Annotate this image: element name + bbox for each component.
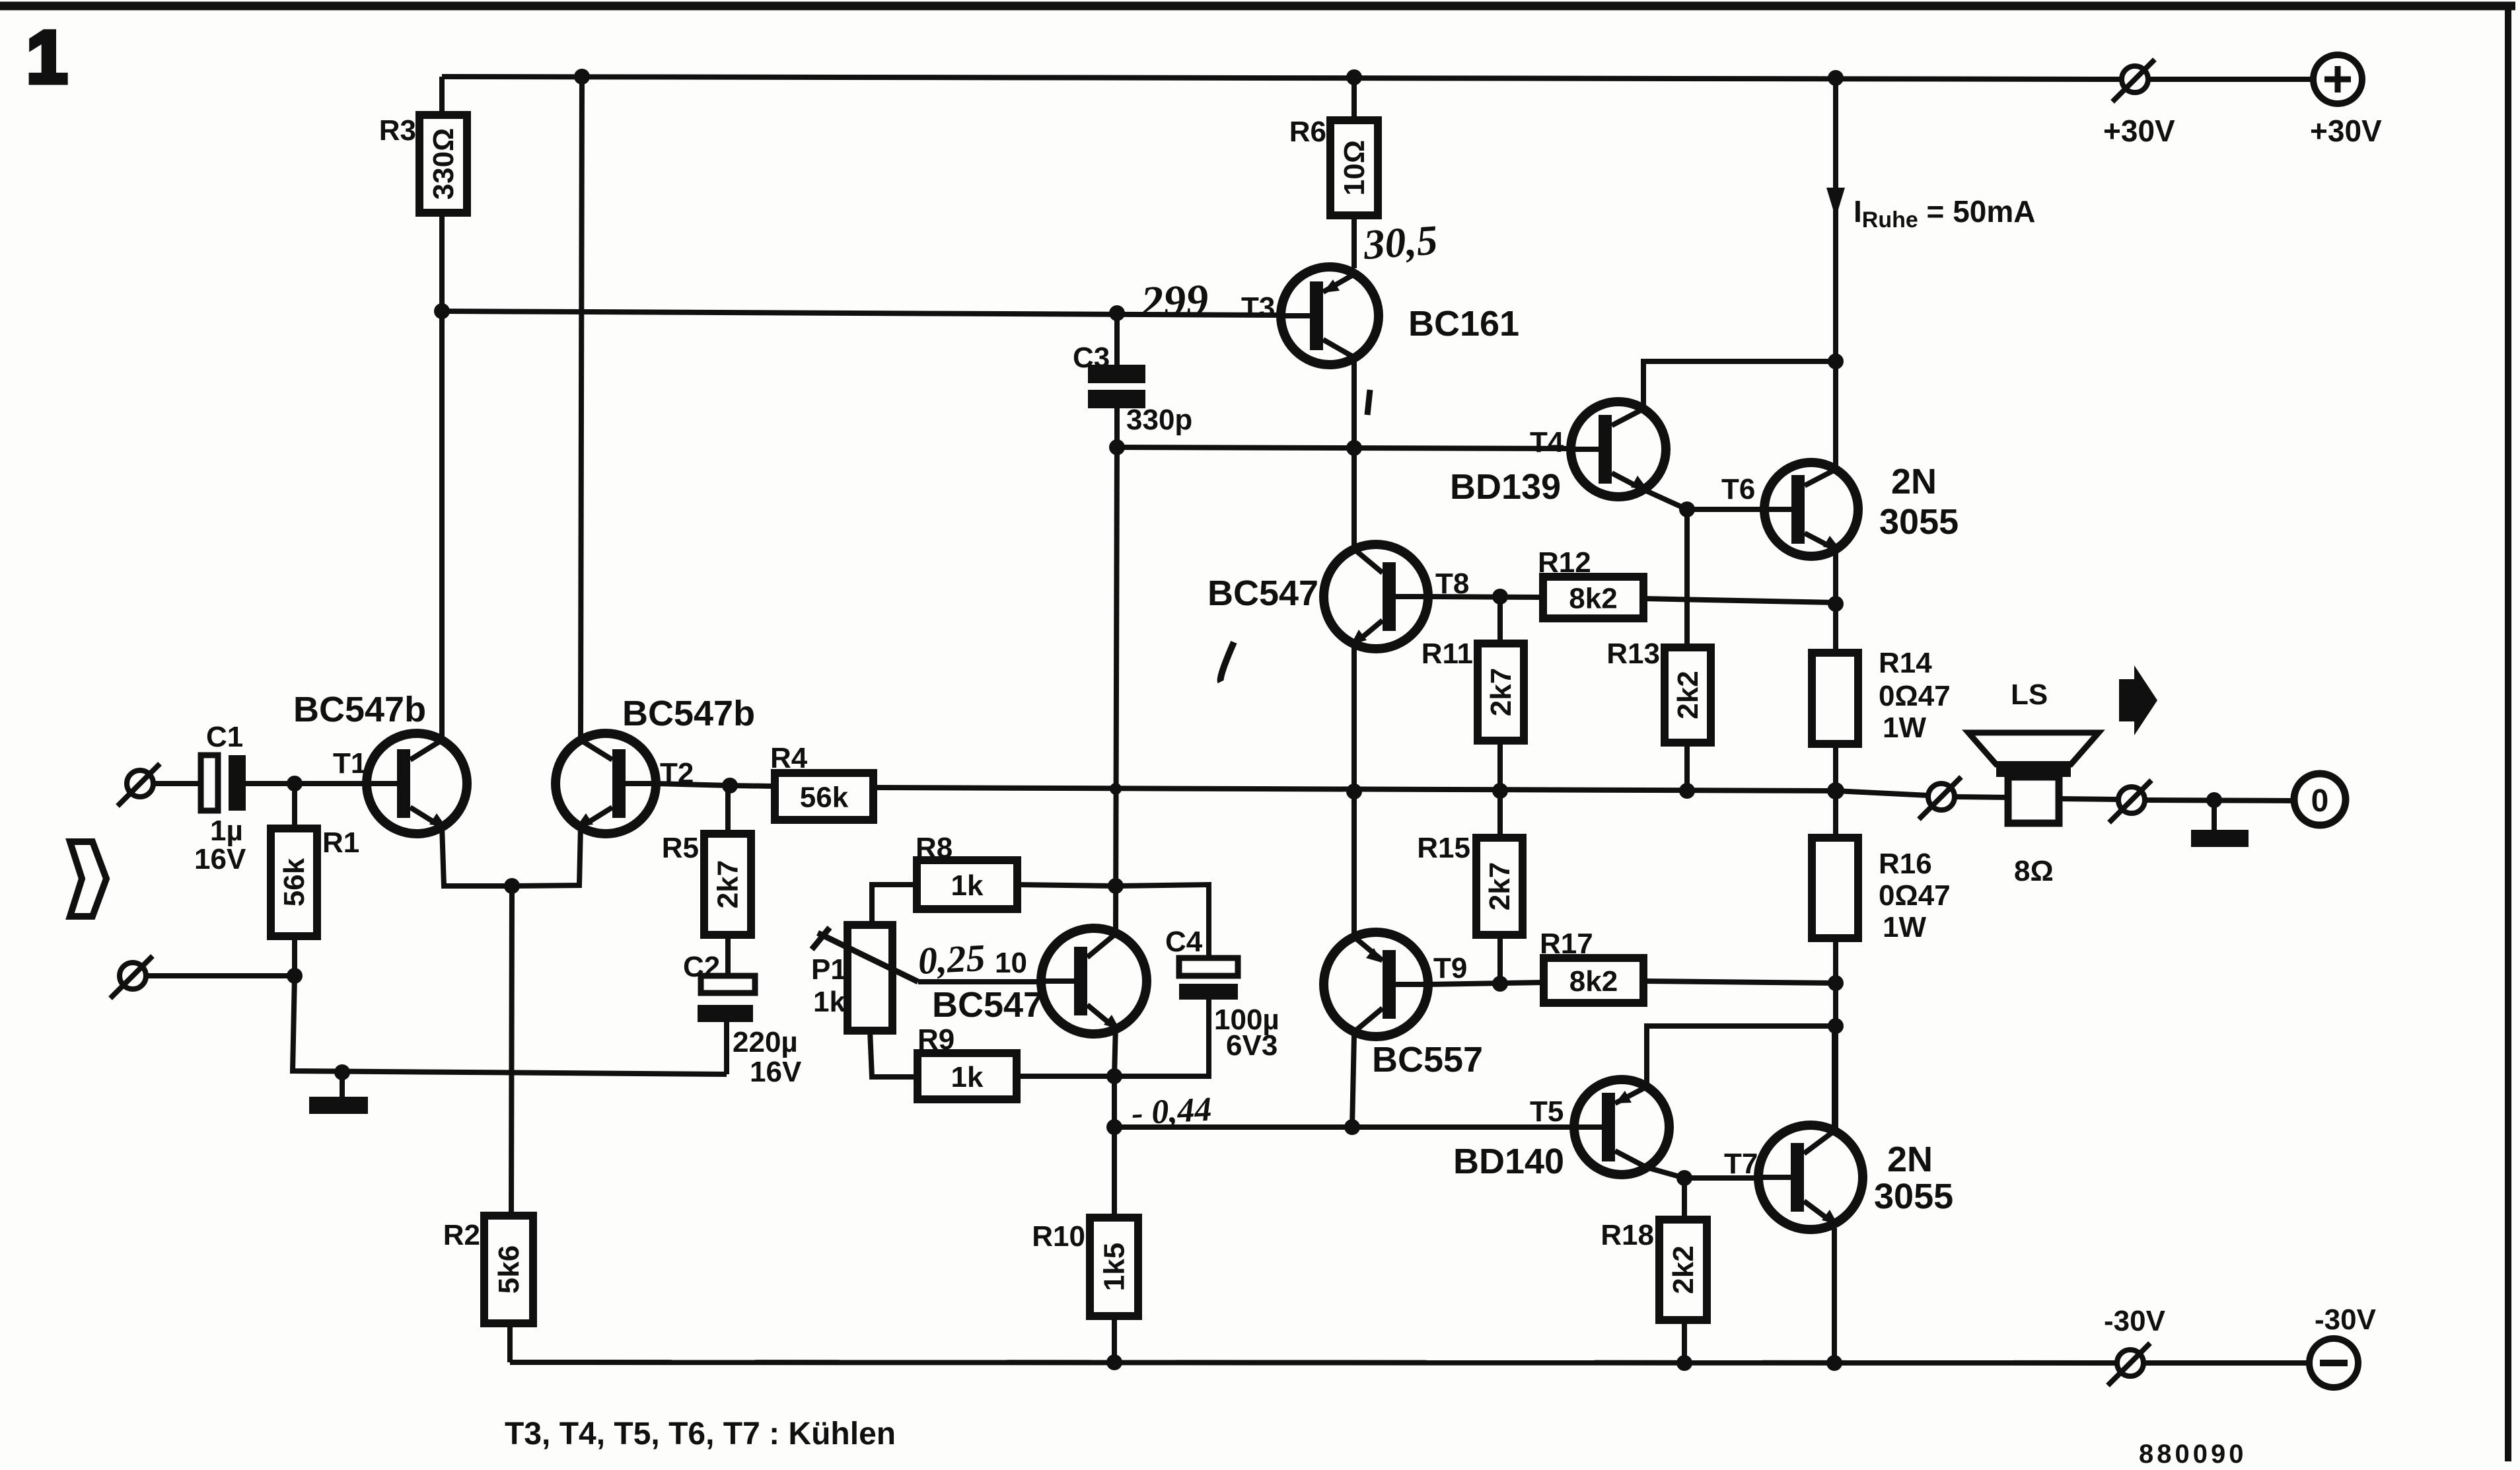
svg-text:T1: T1	[333, 747, 367, 780]
svg-text:2k7: 2k7	[1484, 862, 1516, 910]
svg-text:T4: T4	[1530, 426, 1564, 459]
svg-text:R4: R4	[770, 742, 808, 774]
svg-text:R1: R1	[322, 827, 359, 859]
svg-text:16V: 16V	[750, 1056, 802, 1088]
svg-text:1W: 1W	[1883, 712, 1926, 744]
svg-text:R5: R5	[662, 832, 699, 864]
svg-text:R15: R15	[1417, 832, 1470, 864]
svg-text:330p: 330p	[1126, 404, 1192, 436]
svg-text:C3: C3	[1073, 342, 1110, 374]
svg-text:1k: 1k	[813, 986, 846, 1018]
svg-text:BC547b: BC547b	[622, 694, 755, 733]
svg-text:2N: 2N	[1891, 462, 1937, 501]
svg-text:2k2: 2k2	[1667, 1245, 1700, 1294]
svg-text:R13: R13	[1606, 638, 1660, 670]
svg-text:10Ω: 10Ω	[1338, 140, 1371, 196]
svg-text:8k2: 8k2	[1569, 583, 1617, 615]
svg-text:30,5: 30,5	[1361, 216, 1439, 268]
svg-text:C1: C1	[206, 721, 243, 753]
svg-text:56k: 56k	[278, 858, 310, 906]
svg-text:BC547: BC547	[1207, 573, 1318, 613]
svg-text:6V3: 6V3	[1226, 1029, 1278, 1062]
svg-text:0Ω47: 0Ω47	[1879, 680, 1951, 712]
svg-text:1k: 1k	[951, 869, 984, 902]
svg-text:-30V: -30V	[2104, 1305, 2166, 1337]
svg-text:880090: 880090	[2139, 1440, 2247, 1469]
svg-text:1: 1	[26, 16, 67, 98]
svg-text:R18: R18	[1601, 1219, 1654, 1251]
svg-text:+30V: +30V	[2310, 114, 2382, 148]
svg-text:C2: C2	[683, 951, 720, 983]
svg-text:2N: 2N	[1887, 1140, 1933, 1179]
svg-text:R17: R17	[1540, 928, 1593, 960]
svg-text:10: 10	[995, 947, 1027, 979]
svg-text:8k2: 8k2	[1569, 965, 1618, 998]
svg-text:-30V: -30V	[2315, 1304, 2377, 1336]
svg-text:2k7: 2k7	[1485, 668, 1517, 716]
svg-text:T5: T5	[1530, 1095, 1564, 1128]
svg-text:299: 299	[1139, 274, 1209, 327]
svg-text:LS: LS	[2011, 679, 2048, 711]
svg-text:R12: R12	[1538, 546, 1591, 579]
svg-text:220µ: 220µ	[733, 1026, 798, 1058]
svg-text:- 0,44: - 0,44	[1131, 1091, 1213, 1132]
svg-text:R2: R2	[443, 1219, 480, 1251]
svg-text:R6: R6	[1289, 116, 1326, 148]
svg-text:BC161: BC161	[1408, 304, 1519, 344]
svg-text:T9: T9	[1433, 952, 1467, 984]
svg-text:BD140: BD140	[1453, 1142, 1564, 1181]
svg-text:2k2: 2k2	[1672, 671, 1704, 719]
svg-text:2k7: 2k7	[712, 860, 744, 908]
svg-text:P1: P1	[811, 953, 847, 986]
svg-text:T3: T3	[1241, 291, 1275, 324]
svg-text:R9: R9	[918, 1023, 954, 1056]
svg-text:R16: R16	[1879, 848, 1932, 880]
svg-text:330Ω: 330Ω	[427, 128, 460, 200]
svg-text:T7: T7	[1724, 1148, 1758, 1180]
svg-text:3055: 3055	[1874, 1177, 1953, 1216]
svg-text:R8: R8	[916, 832, 953, 864]
svg-text:16V: 16V	[194, 843, 246, 875]
svg-text:C4: C4	[1165, 926, 1203, 958]
svg-text:BC557: BC557	[1372, 1040, 1483, 1080]
svg-text:8Ω: 8Ω	[2014, 855, 2054, 887]
svg-text:T6: T6	[1721, 473, 1755, 505]
svg-text:+30V: +30V	[2103, 114, 2175, 148]
svg-text:3055: 3055	[1879, 502, 1959, 542]
svg-text:T3, T4, T5, T6, T7 : Kühlen: T3, T4, T5, T6, T7 : Kühlen	[505, 1416, 896, 1452]
svg-text:R11: R11	[1422, 638, 1473, 670]
svg-text:0,25: 0,25	[917, 936, 986, 982]
svg-text:1k: 1k	[951, 1061, 984, 1093]
svg-text:1k5: 1k5	[1098, 1243, 1131, 1291]
svg-text:56k: 56k	[800, 782, 849, 814]
svg-text:R3: R3	[379, 114, 416, 147]
svg-text:1W: 1W	[1883, 911, 1926, 943]
svg-text:0: 0	[2311, 784, 2329, 819]
svg-text:R14: R14	[1879, 647, 1932, 679]
svg-text:BD139: BD139	[1450, 467, 1561, 507]
svg-text:BC547: BC547	[932, 985, 1043, 1025]
svg-text:5k6: 5k6	[493, 1245, 525, 1294]
svg-text:BC547b: BC547b	[293, 690, 426, 729]
svg-text:R10: R10	[1032, 1220, 1085, 1253]
svg-text:1µ: 1µ	[210, 815, 243, 847]
svg-text:0Ω47: 0Ω47	[1879, 879, 1951, 912]
